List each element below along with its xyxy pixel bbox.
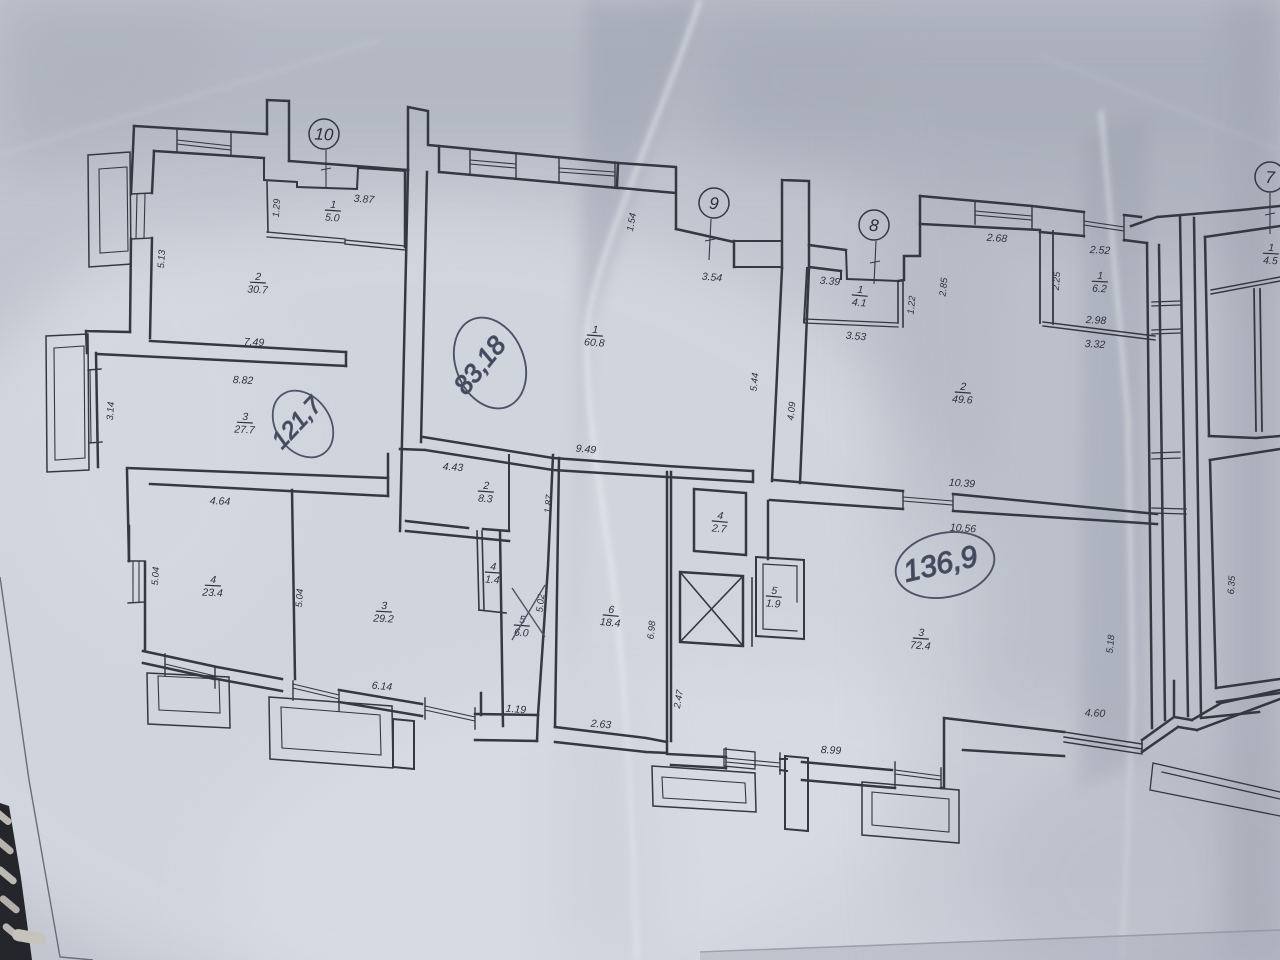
svg-text:3: 3 bbox=[381, 600, 388, 612]
svg-text:3: 3 bbox=[918, 627, 925, 639]
svg-text:1: 1 bbox=[1268, 242, 1274, 254]
svg-text:2.63: 2.63 bbox=[589, 718, 612, 732]
svg-text:23.4: 23.4 bbox=[201, 586, 223, 599]
svg-text:8.99: 8.99 bbox=[820, 744, 841, 757]
svg-text:7.49: 7.49 bbox=[243, 336, 264, 349]
svg-text:6.98: 6.98 bbox=[646, 620, 659, 640]
svg-text:6.35: 6.35 bbox=[1226, 575, 1238, 595]
svg-text:3.39: 3.39 bbox=[819, 275, 841, 289]
svg-text:5: 5 bbox=[771, 585, 778, 597]
svg-text:3.32: 3.32 bbox=[1084, 338, 1105, 351]
svg-text:5.13: 5.13 bbox=[156, 249, 168, 269]
svg-text:8.82: 8.82 bbox=[232, 374, 253, 387]
svg-text:3.14: 3.14 bbox=[105, 401, 117, 420]
svg-text:1: 1 bbox=[1097, 270, 1103, 282]
svg-text:5.44: 5.44 bbox=[749, 372, 762, 392]
svg-text:2.98: 2.98 bbox=[1084, 314, 1106, 327]
svg-text:29.2: 29.2 bbox=[372, 612, 394, 625]
svg-text:5.04: 5.04 bbox=[150, 566, 162, 585]
svg-text:72.4: 72.4 bbox=[910, 639, 931, 652]
svg-text:4.09: 4.09 bbox=[786, 401, 799, 421]
svg-text:4: 4 bbox=[717, 510, 724, 522]
svg-text:1: 1 bbox=[857, 284, 864, 296]
svg-text:4.43: 4.43 bbox=[442, 461, 463, 474]
svg-text:60.8: 60.8 bbox=[584, 336, 605, 349]
svg-text:3.87: 3.87 bbox=[353, 193, 375, 206]
svg-text:5.02: 5.02 bbox=[535, 593, 548, 613]
svg-text:3.54: 3.54 bbox=[701, 271, 723, 285]
svg-text:1.19: 1.19 bbox=[505, 703, 527, 717]
svg-text:8.3: 8.3 bbox=[478, 492, 494, 505]
svg-text:30.7: 30.7 bbox=[247, 283, 269, 296]
svg-text:6.2: 6.2 bbox=[1092, 283, 1107, 296]
svg-text:3.53: 3.53 bbox=[845, 330, 867, 344]
svg-text:4: 4 bbox=[210, 574, 217, 586]
svg-text:1: 1 bbox=[592, 324, 599, 336]
svg-text:6: 6 bbox=[608, 604, 615, 616]
svg-text:1.29: 1.29 bbox=[271, 198, 283, 218]
svg-text:10: 10 bbox=[314, 125, 334, 145]
svg-text:2.7: 2.7 bbox=[710, 522, 728, 535]
svg-text:3: 3 bbox=[242, 411, 249, 423]
svg-text:4.1: 4.1 bbox=[851, 296, 867, 309]
svg-text:27.7: 27.7 bbox=[233, 423, 256, 436]
svg-text:2: 2 bbox=[959, 381, 967, 393]
svg-text:5.0: 5.0 bbox=[325, 211, 341, 224]
svg-text:10.39: 10.39 bbox=[948, 477, 975, 491]
svg-text:4.64: 4.64 bbox=[209, 495, 230, 508]
svg-text:2.68: 2.68 bbox=[985, 232, 1007, 245]
svg-text:1.9: 1.9 bbox=[765, 597, 781, 610]
svg-text:4: 4 bbox=[490, 561, 497, 573]
svg-text:2.52: 2.52 bbox=[1088, 244, 1110, 257]
svg-text:9.49: 9.49 bbox=[575, 443, 597, 457]
svg-text:2: 2 bbox=[482, 480, 490, 492]
svg-text:6.14: 6.14 bbox=[371, 680, 393, 694]
svg-text:7: 7 bbox=[1265, 168, 1276, 187]
svg-text:18.4: 18.4 bbox=[599, 616, 621, 630]
svg-text:2: 2 bbox=[254, 271, 262, 283]
svg-text:1.4: 1.4 bbox=[485, 573, 501, 586]
svg-text:1: 1 bbox=[330, 199, 337, 211]
svg-text:5.18: 5.18 bbox=[1105, 634, 1118, 654]
svg-text:49.6: 49.6 bbox=[952, 393, 973, 406]
svg-text:4.5: 4.5 bbox=[1263, 255, 1278, 268]
svg-text:2.25: 2.25 bbox=[1051, 271, 1063, 292]
svg-text:4.60: 4.60 bbox=[1084, 707, 1105, 720]
svg-text:5.04: 5.04 bbox=[294, 588, 306, 607]
svg-text:2.85: 2.85 bbox=[937, 277, 950, 298]
svg-text:1.87: 1.87 bbox=[543, 494, 556, 514]
svg-text:1.22: 1.22 bbox=[906, 295, 919, 315]
